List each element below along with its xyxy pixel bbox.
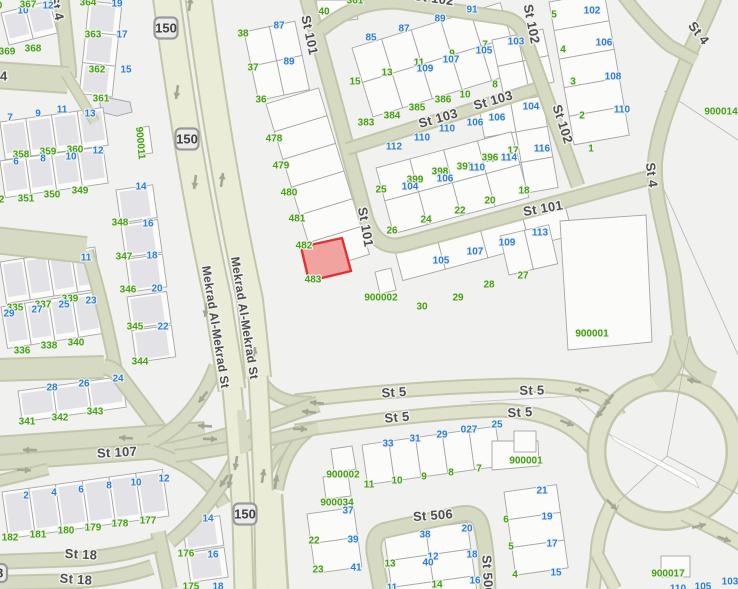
svg-text:368: 368 (25, 44, 42, 55)
svg-text:345: 345 (127, 322, 144, 333)
svg-text:900001: 900001 (575, 329, 609, 340)
svg-text:481: 481 (289, 214, 306, 225)
svg-text:29: 29 (3, 309, 15, 320)
svg-text:St 18: St 18 (64, 546, 97, 563)
svg-text:18: 18 (146, 251, 158, 262)
svg-text:103: 103 (722, 577, 738, 588)
svg-text:150: 150 (155, 21, 177, 36)
svg-text:2: 2 (579, 111, 585, 122)
svg-text:109: 109 (417, 64, 434, 75)
svg-text:106: 106 (489, 113, 506, 124)
svg-text:110: 110 (614, 105, 631, 116)
svg-text:22: 22 (157, 322, 169, 333)
svg-text:350: 350 (44, 190, 61, 201)
svg-text:4: 4 (512, 570, 518, 581)
svg-text:St 506: St 506 (412, 506, 453, 524)
svg-text:11: 11 (57, 105, 68, 116)
svg-text:112: 112 (386, 142, 403, 153)
svg-text:900001: 900001 (509, 456, 543, 467)
svg-text:180: 180 (58, 526, 75, 537)
svg-text:110: 110 (439, 124, 456, 135)
svg-text:479: 479 (273, 161, 290, 172)
svg-text:26: 26 (386, 226, 398, 237)
svg-text:24: 24 (112, 374, 124, 385)
svg-text:342: 342 (52, 413, 69, 424)
svg-text:482: 482 (296, 241, 313, 252)
svg-text:12: 12 (42, 1, 54, 12)
svg-text:15: 15 (550, 568, 562, 579)
svg-text:351: 351 (18, 194, 35, 205)
svg-text:39: 39 (347, 535, 359, 546)
svg-text:110: 110 (469, 163, 486, 174)
svg-text:336: 336 (14, 346, 31, 357)
svg-text:104: 104 (402, 182, 419, 193)
svg-text:361: 361 (347, 0, 364, 7)
svg-text:36: 36 (255, 95, 267, 106)
svg-text:St 5: St 5 (384, 409, 410, 426)
svg-text:181: 181 (30, 530, 47, 541)
svg-text:16: 16 (142, 219, 154, 230)
svg-text:478: 478 (266, 134, 283, 145)
svg-text:27: 27 (517, 271, 529, 282)
svg-text:17: 17 (546, 539, 558, 550)
svg-text:177: 177 (140, 516, 157, 527)
svg-text:87: 87 (273, 21, 285, 32)
svg-text:344: 344 (132, 357, 149, 368)
svg-text:352: 352 (0, 195, 5, 206)
svg-text:18: 18 (466, 550, 478, 561)
svg-text:178: 178 (112, 519, 129, 530)
svg-text:11: 11 (81, 253, 92, 264)
svg-text:105: 105 (476, 46, 493, 57)
svg-text:22: 22 (454, 206, 466, 217)
svg-text:10: 10 (459, 90, 471, 101)
svg-text:8: 8 (448, 468, 454, 479)
svg-text:5: 5 (551, 10, 557, 21)
svg-text:23: 23 (312, 565, 324, 576)
svg-text:7: 7 (7, 113, 13, 124)
svg-text:8: 8 (106, 481, 112, 492)
svg-text:106: 106 (437, 174, 454, 185)
svg-text:St 506: St 506 (479, 555, 496, 589)
svg-text:St 107: St 107 (97, 444, 138, 461)
svg-text:104: 104 (523, 102, 540, 113)
svg-text:348: 348 (112, 218, 129, 229)
svg-text:14: 14 (431, 580, 443, 589)
svg-text:483: 483 (305, 275, 322, 286)
svg-text:29: 29 (436, 430, 448, 441)
svg-text:11: 11 (364, 480, 375, 491)
svg-text:20: 20 (461, 524, 473, 535)
svg-text:St 4: St 4 (0, 69, 8, 84)
svg-text:4: 4 (560, 45, 566, 56)
svg-text:38: 38 (237, 29, 249, 40)
svg-text:27: 27 (31, 305, 43, 316)
svg-text:363: 363 (85, 30, 102, 41)
svg-text:364: 364 (80, 0, 97, 9)
svg-text:1: 1 (588, 144, 594, 155)
svg-text:41: 41 (350, 563, 362, 574)
svg-text:31: 31 (409, 434, 421, 445)
svg-text:109: 109 (499, 238, 516, 249)
svg-text:349: 349 (72, 186, 89, 197)
svg-text:900002: 900002 (364, 293, 398, 304)
svg-text:107: 107 (443, 55, 460, 66)
svg-text:St 5: St 5 (519, 382, 544, 397)
svg-text:108: 108 (605, 72, 622, 83)
svg-text:30: 30 (416, 302, 428, 313)
svg-text:8: 8 (40, 154, 46, 165)
svg-text:114: 114 (501, 153, 518, 164)
svg-text:361: 361 (93, 94, 110, 105)
svg-text:105: 105 (433, 256, 450, 267)
svg-text:40: 40 (318, 7, 330, 18)
svg-text:St 18: St 18 (59, 571, 93, 588)
svg-text:362: 362 (89, 65, 106, 76)
svg-text:367: 367 (20, 0, 37, 11)
svg-text:20: 20 (484, 196, 496, 207)
svg-text:26: 26 (78, 379, 90, 390)
svg-text:3: 3 (570, 77, 576, 88)
svg-text:386: 386 (435, 95, 452, 106)
svg-text:369: 369 (0, 47, 16, 58)
svg-text:33: 33 (382, 439, 394, 450)
svg-text:13: 13 (381, 68, 393, 79)
svg-text:18: 18 (212, 582, 224, 589)
svg-text:113: 113 (532, 228, 549, 239)
svg-text:37: 37 (247, 63, 259, 74)
svg-text:20: 20 (151, 284, 163, 295)
svg-text:105: 105 (695, 582, 712, 589)
svg-text:12: 12 (92, 146, 104, 157)
svg-text:18: 18 (518, 186, 530, 197)
svg-text:110: 110 (414, 133, 431, 144)
svg-text:179: 179 (85, 523, 102, 534)
svg-text:8: 8 (492, 80, 498, 91)
svg-text:6: 6 (13, 157, 19, 168)
svg-text:346: 346 (120, 285, 137, 296)
svg-text:385: 385 (409, 103, 426, 114)
svg-text:103: 103 (508, 37, 525, 48)
svg-text:110: 110 (670, 584, 687, 589)
svg-text:89: 89 (283, 57, 295, 68)
svg-text:91: 91 (466, 5, 478, 16)
svg-text:383: 383 (358, 118, 375, 129)
svg-text:027: 027 (461, 425, 478, 436)
svg-text:13: 13 (84, 109, 96, 120)
svg-text:38: 38 (419, 530, 431, 541)
svg-text:14: 14 (135, 182, 147, 193)
svg-text:9: 9 (421, 472, 427, 483)
svg-text:176: 176 (178, 549, 195, 560)
svg-text:106: 106 (596, 38, 613, 49)
svg-text:9: 9 (35, 109, 41, 120)
svg-text:6: 6 (503, 515, 509, 526)
svg-text:6: 6 (78, 485, 84, 496)
svg-text:15: 15 (349, 77, 361, 88)
svg-text:St 4: St 4 (643, 162, 661, 189)
svg-text:106: 106 (467, 118, 484, 129)
svg-text:102: 102 (584, 6, 601, 17)
svg-text:13: 13 (384, 559, 396, 570)
svg-text:480: 480 (281, 188, 298, 199)
svg-text:19: 19 (541, 512, 553, 523)
svg-text:4: 4 (51, 488, 57, 499)
svg-text:107: 107 (467, 247, 484, 258)
svg-text:2: 2 (23, 491, 29, 502)
svg-text:900002: 900002 (326, 470, 360, 481)
svg-text:347: 347 (116, 252, 133, 263)
svg-text:18: 18 (0, 566, 3, 581)
svg-text:89: 89 (434, 14, 446, 25)
svg-text:85: 85 (365, 33, 377, 44)
svg-text:24: 24 (420, 215, 432, 226)
svg-text:22: 22 (308, 536, 320, 547)
svg-text:150: 150 (234, 507, 256, 522)
svg-text:23: 23 (85, 296, 97, 307)
svg-text:182: 182 (2, 533, 19, 544)
svg-text:396: 396 (482, 153, 499, 164)
svg-text:28: 28 (483, 280, 495, 291)
svg-text:343: 343 (87, 407, 104, 418)
svg-text:175: 175 (183, 582, 200, 589)
svg-text:37: 37 (342, 506, 354, 517)
svg-text:5: 5 (508, 542, 514, 553)
svg-text:12: 12 (158, 474, 170, 485)
svg-text:900017: 900017 (651, 569, 685, 580)
svg-text:15: 15 (120, 65, 132, 76)
svg-text:16: 16 (469, 576, 481, 587)
svg-text:338: 338 (41, 341, 58, 352)
svg-text:116: 116 (534, 144, 551, 155)
svg-text:340: 340 (68, 338, 85, 349)
svg-text:7: 7 (476, 464, 482, 475)
svg-text:St 5: St 5 (507, 404, 533, 420)
svg-text:384: 384 (384, 111, 401, 122)
svg-text:87: 87 (398, 24, 410, 35)
svg-text:28: 28 (46, 383, 58, 394)
svg-text:150: 150 (176, 132, 198, 147)
svg-text:14: 14 (202, 514, 214, 525)
svg-text:16: 16 (207, 550, 219, 561)
svg-text:341: 341 (19, 417, 36, 428)
svg-text:19: 19 (111, 0, 123, 10)
svg-text:40: 40 (422, 558, 434, 569)
svg-text:29: 29 (452, 293, 464, 304)
svg-text:10: 10 (130, 478, 142, 489)
svg-text:21: 21 (536, 486, 548, 497)
svg-text:11: 11 (387, 583, 398, 589)
svg-text:900014: 900014 (704, 107, 738, 118)
svg-text:25: 25 (375, 185, 387, 196)
svg-text:17: 17 (116, 30, 128, 41)
svg-text:10: 10 (391, 476, 403, 487)
svg-text:10: 10 (65, 152, 77, 163)
svg-text:25: 25 (58, 300, 70, 311)
svg-text:St 5: St 5 (381, 384, 407, 401)
svg-text:25: 25 (491, 420, 503, 431)
